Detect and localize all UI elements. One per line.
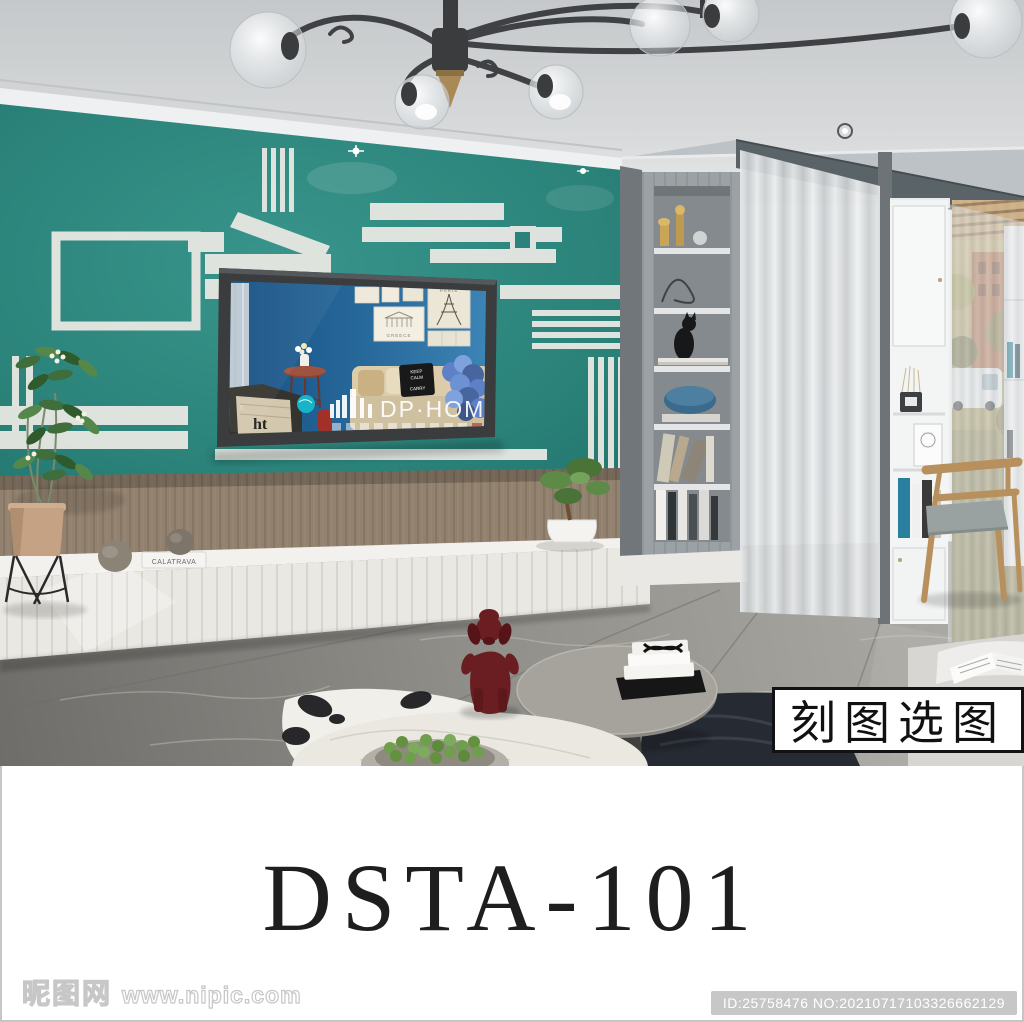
product-code: DSTA-101 [2,850,1022,946]
site-name: 昵图网 [22,972,112,1012]
sheer-curtain-main [740,150,880,618]
greece-label: GREECE [386,333,411,338]
lower-section: DSTA-101 昵图网 www.nipic.com ID:25758476 N… [0,766,1024,1022]
svg-text:KEEP: KEEP [410,369,422,375]
selection-label-text: 刻图选图 [790,687,1006,753]
display-shelf [618,166,748,586]
book-spine-text: CALATRAVA [152,559,197,566]
svg-text:CALM: CALM [410,375,423,381]
tv: GREECE PARIS [210,268,505,464]
living-room-photo: GREECE PARIS [0,0,1024,766]
shelf-blue-bowl [662,386,720,422]
glass-door-area [878,152,950,624]
shelf-plinth [618,550,748,586]
image-id-badge: ID:25758476 NO:20210717103326662129 [711,991,1017,1015]
selection-label: 刻图选图 [772,687,1024,753]
shelf-book-row [656,490,718,540]
site-watermark: 昵图网 www.nipic.com [22,972,302,1012]
chandelier-hub [432,28,468,72]
door-frame [878,152,892,624]
stone-on-book [166,529,194,555]
tv-screen: GREECE PARIS [225,275,503,440]
site-url: www.nipic.com [122,982,302,1009]
keep-calm-pillow: KEEP CALM CARRY [399,363,435,397]
stock-image-page: GREECE PARIS [0,0,1024,1022]
sheer-curtain-right [948,204,1024,648]
